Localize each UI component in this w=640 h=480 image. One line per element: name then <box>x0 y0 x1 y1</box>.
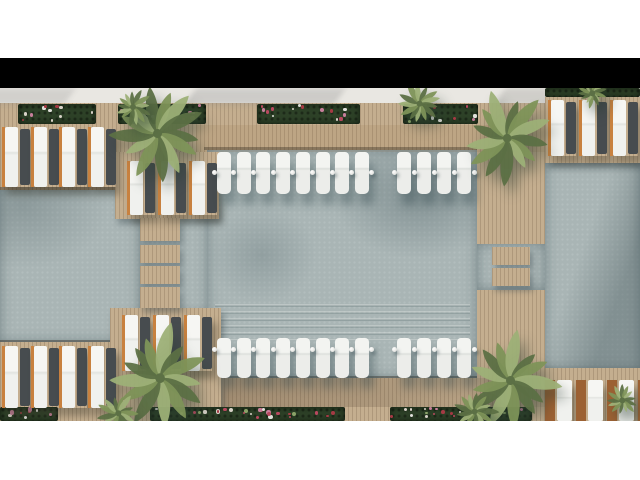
lounger-dark <box>20 129 30 185</box>
flower-dot <box>55 105 58 108</box>
flower-dot <box>390 415 392 417</box>
in-pool-lounger <box>397 338 411 378</box>
flower-dot <box>30 113 34 117</box>
lounger-white <box>62 346 75 408</box>
in-pool-lounger <box>237 338 251 378</box>
flower-dot <box>410 414 413 417</box>
side-table-dot <box>310 170 315 175</box>
side-table-dot <box>271 170 276 175</box>
flower-dot <box>48 109 51 112</box>
flower-dot <box>320 108 324 112</box>
planter-box <box>0 407 58 421</box>
side-table-dot <box>251 347 256 352</box>
lounger-dark <box>77 129 87 185</box>
flower-dot <box>20 412 22 414</box>
in-pool-lounger <box>296 152 310 194</box>
side-table-dot <box>251 170 256 175</box>
lounger-white <box>5 127 18 187</box>
white-margin-bottom <box>0 421 640 480</box>
palm-tree <box>452 83 562 193</box>
flower-dot <box>435 408 437 410</box>
lounger-white <box>5 346 18 408</box>
in-pool-lounger <box>256 152 270 194</box>
lounger-wood <box>576 380 586 421</box>
planter-box <box>257 104 360 124</box>
flower-dot <box>276 412 279 415</box>
lounger-dark <box>77 348 87 406</box>
bridge-left-segment <box>140 266 180 284</box>
sun-lounger-pair <box>2 346 30 408</box>
flower-dot <box>424 408 426 410</box>
lounger-white <box>613 100 626 156</box>
flower-dot <box>250 413 253 416</box>
bridge-left-segment <box>140 245 180 263</box>
in-pool-lounger <box>316 152 330 194</box>
in-pool-lounger <box>256 338 270 378</box>
flower-dot <box>425 412 427 414</box>
flower-dot <box>59 115 62 118</box>
in-pool-lounger <box>355 338 369 378</box>
flower-dot <box>243 412 245 414</box>
pool-edge <box>204 147 477 150</box>
in-pool-lounger <box>217 152 231 194</box>
in-pool-lounger <box>417 152 431 194</box>
flower-dot <box>441 410 445 414</box>
flower-dot <box>10 410 14 414</box>
flower-dot <box>44 105 47 108</box>
side-table-dot <box>330 170 335 175</box>
flower-dot <box>433 413 435 415</box>
flower-dot <box>289 416 291 418</box>
in-pool-lounger <box>437 338 451 378</box>
flower-dot <box>266 110 270 114</box>
in-pool-lounger <box>296 338 310 378</box>
sun-lounger-pair <box>31 127 59 187</box>
flower-dot <box>59 106 62 109</box>
side-table-dot <box>392 170 397 175</box>
in-pool-lounger <box>237 152 251 194</box>
flower-dot <box>223 408 227 412</box>
side-table-dot <box>412 170 417 175</box>
flower-dot <box>51 119 53 121</box>
letterbox-black-bar <box>0 58 640 88</box>
in-pool-lounger <box>316 338 330 378</box>
flower-dot <box>271 107 275 111</box>
flower-dot <box>315 411 318 414</box>
side-table-dot <box>412 347 417 352</box>
flower-dot <box>28 407 32 411</box>
flower-dot <box>261 105 263 107</box>
planter-box <box>18 104 96 124</box>
lounger-dark <box>20 348 30 406</box>
flower-dot <box>22 119 24 121</box>
sun-lounger-pair <box>59 346 87 408</box>
sun-lounger-pair <box>576 380 603 421</box>
sun-lounger-pair <box>610 100 638 156</box>
flower-dot <box>301 105 304 108</box>
lounger-white <box>34 346 47 408</box>
side-table-dot <box>432 170 437 175</box>
flower-dot <box>339 117 342 120</box>
in-pool-lounger <box>335 338 349 378</box>
in-pool-lounger <box>276 152 290 194</box>
sun-lounger-pair <box>2 127 30 187</box>
lounger-white <box>62 127 75 187</box>
flower-dot <box>404 408 408 412</box>
flower-dot <box>24 112 28 116</box>
flower-dot <box>425 415 428 418</box>
flower-dot <box>272 115 274 117</box>
lounger-white <box>34 127 47 187</box>
bridge-right-segment <box>492 247 530 265</box>
flower-dot <box>288 413 290 415</box>
in-pool-lounger <box>335 152 349 194</box>
pool-plan-rendering <box>0 0 640 480</box>
flower-dot <box>256 416 259 419</box>
flower-dot <box>429 407 432 410</box>
flower-dot <box>330 109 333 112</box>
white-margin-top <box>0 0 640 58</box>
in-pool-lounger <box>417 338 431 378</box>
flower-dot <box>336 118 338 120</box>
in-pool-lounger <box>276 338 290 378</box>
flower-dot <box>258 408 261 411</box>
lounger-white <box>588 380 603 421</box>
flower-dot <box>292 108 294 110</box>
flower-dot <box>343 108 347 112</box>
flower-dot <box>91 111 93 113</box>
side-table-dot <box>271 347 276 352</box>
sun-lounger-pair <box>31 346 59 408</box>
flower-dot <box>49 413 52 416</box>
flower-dot <box>229 408 233 412</box>
lounger-dark <box>49 348 59 406</box>
side-table-dot <box>330 347 335 352</box>
bridge-right-segment <box>492 268 530 286</box>
side-table-dot <box>432 347 437 352</box>
flower-dot <box>343 113 346 116</box>
in-pool-lounger <box>397 152 411 194</box>
bridge-left-segment <box>140 287 180 308</box>
flower-dot <box>331 411 335 415</box>
palm-tree <box>604 382 640 419</box>
flower-dot <box>262 408 265 411</box>
side-table-dot <box>392 347 397 352</box>
in-pool-lounger <box>355 152 369 194</box>
lounger-dark <box>49 129 59 185</box>
sun-lounger-pair <box>59 127 87 187</box>
flower-dot <box>36 409 38 411</box>
flower-dot <box>262 108 265 111</box>
lounger-dark <box>628 102 638 154</box>
flower-dot <box>326 415 329 418</box>
palm-tree <box>110 84 156 130</box>
flower-dot <box>292 412 296 416</box>
bridge-left-segment <box>140 218 180 241</box>
side-table-dot <box>310 347 315 352</box>
flower-dot <box>24 416 27 419</box>
in-pool-lounger <box>437 152 451 194</box>
flower-dot <box>410 408 412 410</box>
